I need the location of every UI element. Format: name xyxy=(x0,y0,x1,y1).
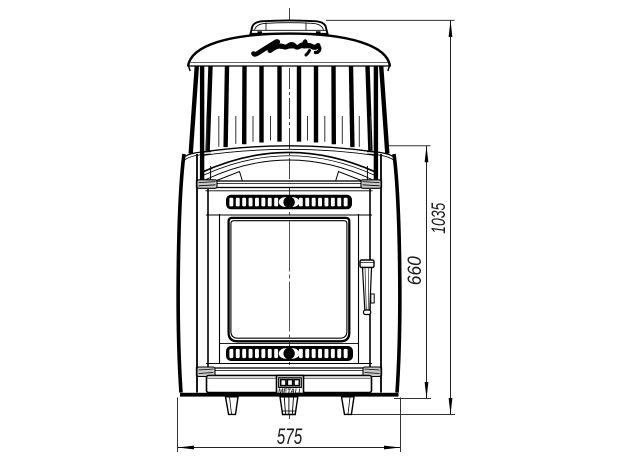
svg-text:660: 660 xyxy=(405,256,426,285)
svg-text:575: 575 xyxy=(277,424,303,449)
svg-text:1035: 1035 xyxy=(429,202,450,233)
